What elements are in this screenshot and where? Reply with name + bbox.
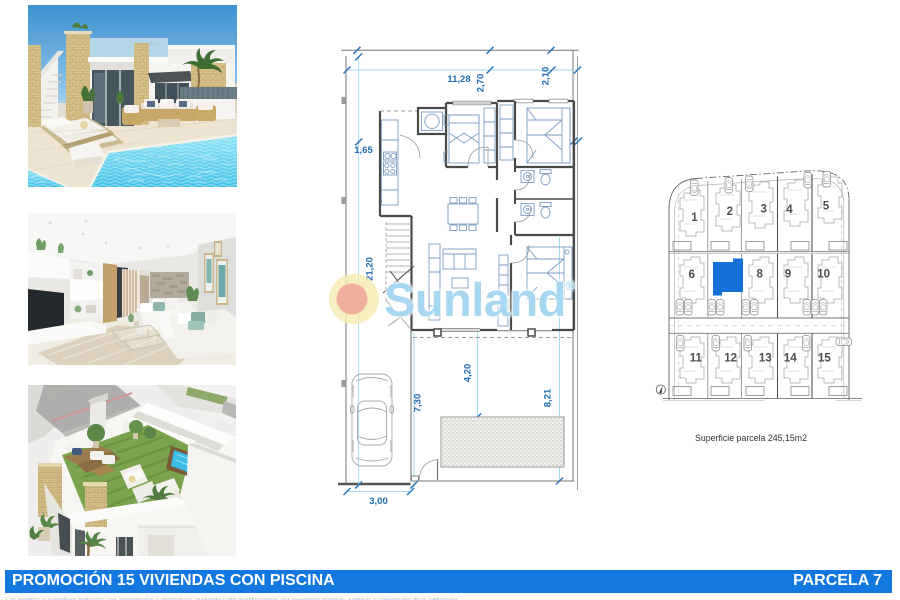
svg-text:Superficie parcela 245,15m2: Superficie parcela 245,15m2 (695, 433, 807, 443)
svg-text:2: 2 (727, 206, 733, 218)
svg-text:14: 14 (784, 353, 797, 365)
svg-text:3: 3 (760, 204, 766, 216)
svg-text:15: 15 (818, 353, 831, 365)
svg-text:4: 4 (786, 204, 793, 216)
svg-text:9: 9 (785, 269, 791, 281)
svg-text:1: 1 (691, 212, 698, 224)
svg-text:12: 12 (724, 353, 737, 365)
svg-text:6: 6 (688, 269, 694, 281)
svg-text:13: 13 (759, 353, 772, 365)
svg-text:8: 8 (756, 269, 763, 281)
svg-text:5: 5 (823, 201, 830, 213)
svg-text:10: 10 (817, 269, 830, 281)
svg-text:11: 11 (690, 353, 703, 365)
